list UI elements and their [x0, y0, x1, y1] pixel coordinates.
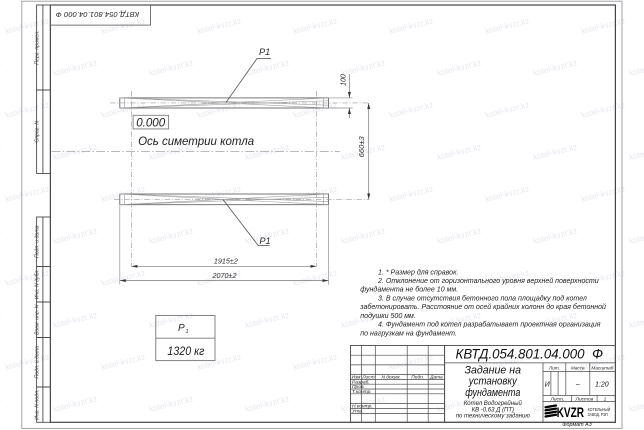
svg-text:по нагрузкам на фундамент.: по нагрузкам на фундамент.: [360, 329, 457, 337]
svg-text:2070±2: 2070±2: [212, 271, 237, 280]
svg-text:–: –: [575, 382, 580, 389]
svg-text:1: 1: [604, 397, 607, 403]
svg-text:Инв. N подл.: Инв. N подл.: [35, 389, 41, 419]
svg-text:0.000: 0.000: [136, 116, 165, 130]
svg-text:2. Отклонение от горизонтально: 2. Отклонение от горизонтального уровня …: [377, 277, 599, 285]
svg-text:Лит.: Лит.: [548, 365, 560, 371]
svg-text:Лист.: Лист.: [550, 397, 565, 403]
svg-text:Масса: Масса: [571, 365, 585, 370]
svg-text:КВ -0,63 Д (ПТ): КВ -0,63 Д (ПТ): [472, 407, 514, 413]
svg-text:P1: P1: [259, 236, 270, 246]
svg-text:ЗАВОД, РЭП: ЗАВОД, РЭП: [588, 412, 608, 417]
svg-text:P: P: [178, 323, 185, 334]
svg-text:1: 1: [186, 329, 189, 335]
svg-text:Справ. N: Справ. N: [35, 121, 41, 143]
svg-text:по техническому заданию: по техническому заданию: [456, 414, 531, 420]
svg-text:Масштаб: Масштаб: [591, 365, 613, 370]
svg-text:Подп. и дата: Подп. и дата: [35, 346, 41, 379]
svg-text:KVZR: KVZR: [557, 405, 585, 420]
svg-text:Дата: Дата: [429, 375, 443, 381]
svg-text:Взам. инв. N: Взам. инв. N: [35, 304, 41, 334]
svg-text:фундамента: фундамента: [465, 387, 520, 399]
svg-text:Ф: Ф: [592, 346, 603, 362]
svg-text:P1: P1: [259, 47, 270, 57]
svg-text:100: 100: [341, 74, 348, 86]
svg-text:Инв. N дубл.: Инв. N дубл.: [35, 269, 41, 299]
svg-text:1915±2: 1915±2: [214, 257, 238, 266]
svg-text:Ось симетрии котла: Ось симетрии котла: [138, 134, 254, 148]
svg-text:3. В случае отсутствия бетонно: 3. В случае отсутствия бетонного пола пл…: [378, 294, 587, 302]
svg-text:1. * Размер для справок.: 1. * Размер для справок.: [378, 268, 458, 276]
svg-text:Подп.: Подп.: [411, 375, 424, 381]
svg-text:Перв. примен.: Перв. примен.: [35, 30, 41, 64]
svg-text:Котел Водогрейный: Котел Водогрейный: [464, 400, 523, 407]
svg-text:Утв.: Утв.: [352, 409, 363, 415]
svg-text:660±3: 660±3: [357, 135, 366, 157]
svg-text:1:20: 1:20: [595, 382, 609, 389]
svg-text:Подп. и дата: Подп. и дата: [35, 225, 41, 258]
svg-text:1320 кг: 1320 кг: [167, 346, 204, 358]
svg-text:Листов: Листов: [575, 397, 594, 403]
svg-text:забетонировать. Расстояние от: забетонировать. Расстояние от осей крайн…: [359, 303, 606, 311]
svg-text:Т.контр.: Т.контр.: [352, 389, 372, 395]
svg-text:установку: установку: [468, 375, 518, 387]
svg-text:4. Фундамент под котел разраба: 4. Фундамент под котел разрабатывает про…: [378, 321, 601, 329]
svg-text:подушки 500 мм.: подушки 500 мм.: [360, 312, 416, 320]
svg-text:КВТД.054.801.04.000 Ф: КВТД.054.801.04.000 Ф: [56, 10, 139, 19]
svg-text:КВТД.054.801.04.000: КВТД.054.801.04.000: [456, 346, 585, 362]
svg-text:N докум.: N докум.: [381, 375, 400, 381]
svg-text:фундамента не более 10 мм.: фундамента не более 10 мм.: [360, 286, 458, 294]
svg-text:Формат А3: Формат А3: [562, 422, 592, 428]
